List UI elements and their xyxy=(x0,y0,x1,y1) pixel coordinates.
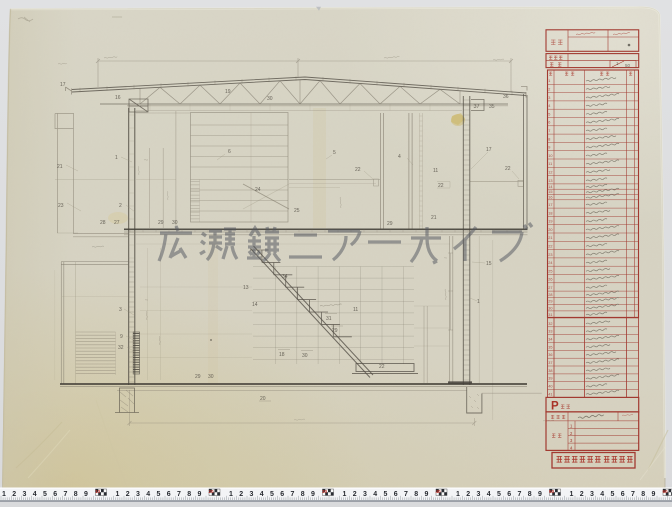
svg-text:29: 29 xyxy=(548,300,552,304)
svg-text:5: 5 xyxy=(384,491,388,498)
svg-text:8: 8 xyxy=(528,491,532,498)
svg-text:21: 21 xyxy=(57,164,63,170)
svg-text:22: 22 xyxy=(379,364,385,370)
svg-text:17: 17 xyxy=(486,147,492,153)
svg-text:4: 4 xyxy=(600,491,604,498)
svg-text:32: 32 xyxy=(548,322,552,326)
svg-text:12: 12 xyxy=(548,171,552,175)
svg-text:41: 41 xyxy=(548,392,552,396)
svg-text:17: 17 xyxy=(548,203,552,207)
svg-text:2: 2 xyxy=(239,491,243,498)
svg-text:36: 36 xyxy=(548,353,552,357)
svg-text:10: 10 xyxy=(95,489,101,494)
svg-text:4: 4 xyxy=(33,491,37,498)
svg-text:4: 4 xyxy=(398,154,401,160)
svg-text:26: 26 xyxy=(548,278,552,282)
svg-text:29: 29 xyxy=(158,220,164,226)
svg-text:13: 13 xyxy=(243,285,249,291)
svg-text:27: 27 xyxy=(114,220,120,226)
svg-text:15: 15 xyxy=(548,190,552,194)
svg-text:5: 5 xyxy=(333,150,336,156)
svg-text:30: 30 xyxy=(267,96,273,102)
svg-text:11: 11 xyxy=(548,162,552,166)
svg-text:9: 9 xyxy=(120,334,123,340)
svg-text:1: 1 xyxy=(548,79,550,83)
svg-text:39: 39 xyxy=(548,377,552,381)
svg-text:7: 7 xyxy=(291,491,295,498)
svg-text:11: 11 xyxy=(433,168,438,174)
svg-text:3: 3 xyxy=(23,491,27,498)
svg-text:1: 1 xyxy=(456,491,460,498)
svg-text:7: 7 xyxy=(631,491,635,498)
svg-text:8: 8 xyxy=(74,491,78,498)
svg-text:29: 29 xyxy=(332,328,338,334)
svg-text:2: 2 xyxy=(126,491,130,498)
svg-text:30: 30 xyxy=(208,374,214,380)
svg-text:4: 4 xyxy=(548,104,550,108)
svg-text:25: 25 xyxy=(548,269,552,273)
svg-text:2: 2 xyxy=(466,491,470,498)
svg-text:1: 1 xyxy=(343,491,347,498)
svg-text:29: 29 xyxy=(195,374,201,380)
svg-text:3: 3 xyxy=(363,491,367,498)
svg-text:8: 8 xyxy=(301,491,305,498)
svg-text:9: 9 xyxy=(311,491,315,498)
svg-text:7: 7 xyxy=(518,491,522,498)
svg-text:19: 19 xyxy=(548,220,552,224)
svg-text:7: 7 xyxy=(548,129,550,133)
svg-text:9: 9 xyxy=(538,491,542,498)
svg-text:60: 60 xyxy=(663,489,669,494)
svg-text:3: 3 xyxy=(477,491,481,498)
svg-text:20: 20 xyxy=(209,489,215,494)
svg-text:35: 35 xyxy=(548,345,552,349)
svg-text:5: 5 xyxy=(157,491,161,498)
svg-text:18: 18 xyxy=(279,352,285,358)
svg-text:23: 23 xyxy=(548,253,552,257)
svg-text:9: 9 xyxy=(198,491,202,498)
svg-text:9: 9 xyxy=(548,146,550,150)
svg-text:21: 21 xyxy=(548,236,552,240)
svg-text:6: 6 xyxy=(228,149,231,155)
svg-text:4: 4 xyxy=(146,491,150,498)
svg-text:33: 33 xyxy=(548,330,552,334)
svg-text:5: 5 xyxy=(611,491,615,498)
svg-text:5: 5 xyxy=(497,491,501,498)
svg-text:6: 6 xyxy=(621,491,625,498)
svg-text:25: 25 xyxy=(294,208,300,214)
svg-text:3: 3 xyxy=(548,96,550,100)
svg-text:8: 8 xyxy=(548,137,550,141)
svg-text:6: 6 xyxy=(53,491,57,498)
svg-text:30: 30 xyxy=(548,306,552,310)
svg-text:14: 14 xyxy=(548,185,552,189)
svg-text:1: 1 xyxy=(229,491,233,498)
svg-text:40: 40 xyxy=(436,489,442,494)
svg-text:14: 14 xyxy=(252,302,258,308)
svg-text:6: 6 xyxy=(167,491,171,498)
svg-text:13: 13 xyxy=(548,179,552,183)
svg-text:28: 28 xyxy=(548,293,552,297)
svg-text:6: 6 xyxy=(507,491,511,498)
svg-text:1: 1 xyxy=(116,491,120,498)
svg-text:34: 34 xyxy=(548,338,552,342)
svg-text:40: 40 xyxy=(548,385,552,389)
svg-text:4: 4 xyxy=(373,491,377,498)
svg-text:23: 23 xyxy=(58,203,64,209)
svg-text:1: 1 xyxy=(115,155,118,161)
svg-text:7: 7 xyxy=(64,491,68,498)
svg-text:31: 31 xyxy=(548,313,552,317)
svg-text:2: 2 xyxy=(548,88,550,92)
svg-text:8: 8 xyxy=(187,491,191,498)
svg-text:30: 30 xyxy=(302,353,308,359)
svg-text:32: 32 xyxy=(118,345,124,351)
svg-text:2: 2 xyxy=(580,491,584,498)
svg-text:8: 8 xyxy=(414,491,418,498)
svg-text:5: 5 xyxy=(548,112,550,116)
svg-text:1: 1 xyxy=(477,299,480,305)
svg-text:7: 7 xyxy=(177,491,181,498)
svg-text:2: 2 xyxy=(12,491,16,498)
svg-text:3: 3 xyxy=(250,491,254,498)
svg-text:2: 2 xyxy=(353,491,357,498)
svg-text:9: 9 xyxy=(425,491,429,498)
svg-text:22: 22 xyxy=(548,245,552,249)
svg-text:29: 29 xyxy=(387,221,393,227)
svg-text:38: 38 xyxy=(548,369,552,373)
svg-text:35: 35 xyxy=(489,104,495,110)
svg-text:28: 28 xyxy=(100,220,106,226)
svg-text:37: 37 xyxy=(548,361,552,365)
svg-text:17: 17 xyxy=(60,82,66,88)
svg-text:50: 50 xyxy=(549,489,555,494)
svg-text:50: 50 xyxy=(625,63,631,68)
svg-text:8: 8 xyxy=(641,491,645,498)
svg-text:6: 6 xyxy=(548,121,550,125)
svg-text:22: 22 xyxy=(355,167,361,173)
svg-text:24: 24 xyxy=(255,187,261,193)
svg-text:27: 27 xyxy=(548,286,552,290)
svg-text:P: P xyxy=(551,400,559,412)
svg-text:21: 21 xyxy=(431,215,437,221)
svg-text:9: 9 xyxy=(84,491,88,498)
svg-text:11: 11 xyxy=(353,307,358,313)
svg-text:37: 37 xyxy=(474,104,480,110)
svg-text:18: 18 xyxy=(548,211,552,215)
svg-text:22: 22 xyxy=(505,166,511,172)
svg-text:7: 7 xyxy=(404,491,408,498)
svg-text:30: 30 xyxy=(322,489,328,494)
svg-text:19: 19 xyxy=(225,89,231,95)
svg-text:36: 36 xyxy=(503,94,509,100)
svg-text:4: 4 xyxy=(260,491,264,498)
svg-text:20: 20 xyxy=(548,228,552,232)
svg-text:16: 16 xyxy=(548,196,552,200)
svg-text:5: 5 xyxy=(43,491,47,498)
svg-text:30: 30 xyxy=(172,220,178,226)
svg-text:6: 6 xyxy=(280,491,284,498)
svg-text:3: 3 xyxy=(119,307,122,313)
svg-text:10: 10 xyxy=(548,154,552,158)
svg-text:1: 1 xyxy=(2,491,6,498)
svg-text:16: 16 xyxy=(115,95,121,101)
svg-text:6: 6 xyxy=(394,491,398,498)
svg-text:3: 3 xyxy=(136,491,140,498)
svg-text:9: 9 xyxy=(652,491,656,498)
svg-text:3: 3 xyxy=(590,491,594,498)
svg-text:24: 24 xyxy=(548,261,552,265)
svg-text:1: 1 xyxy=(570,491,574,498)
svg-text:4: 4 xyxy=(487,491,491,498)
svg-text:2: 2 xyxy=(119,203,122,209)
svg-text:5: 5 xyxy=(270,491,274,498)
svg-text:15: 15 xyxy=(486,261,492,267)
svg-text:31: 31 xyxy=(326,316,332,322)
svg-text:34: 34 xyxy=(282,274,288,280)
